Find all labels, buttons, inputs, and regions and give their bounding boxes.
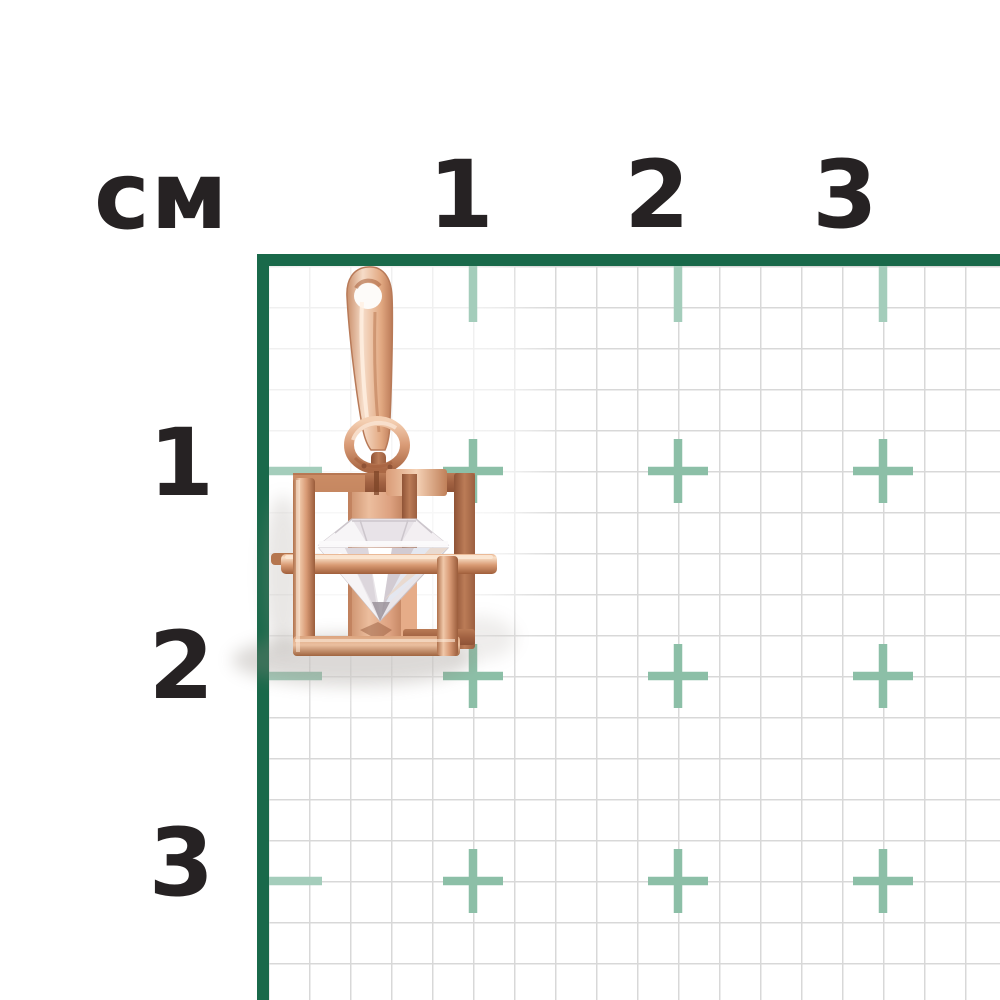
left-tick-label-1: 1 bbox=[94, 417, 214, 511]
ruler-frame-vertical bbox=[257, 254, 269, 1000]
ruler-frame-horizontal bbox=[257, 254, 1000, 266]
unit-label: см bbox=[94, 150, 229, 244]
top-tick-label-2: 2 bbox=[624, 149, 689, 243]
left-tick-label-2: 2 bbox=[94, 620, 214, 714]
top-tick-label-1: 1 bbox=[428, 149, 493, 243]
left-tick-label-3: 3 bbox=[94, 817, 214, 911]
top-tick-1cm bbox=[469, 266, 478, 322]
top-tick-label-3: 3 bbox=[812, 149, 877, 243]
size-chart-photo: см 1 2 3 1 2 3 bbox=[0, 0, 1000, 1000]
left-tick-3cm bbox=[269, 877, 322, 886]
top-tick-3cm bbox=[879, 266, 888, 322]
top-tick-2cm bbox=[674, 266, 683, 322]
